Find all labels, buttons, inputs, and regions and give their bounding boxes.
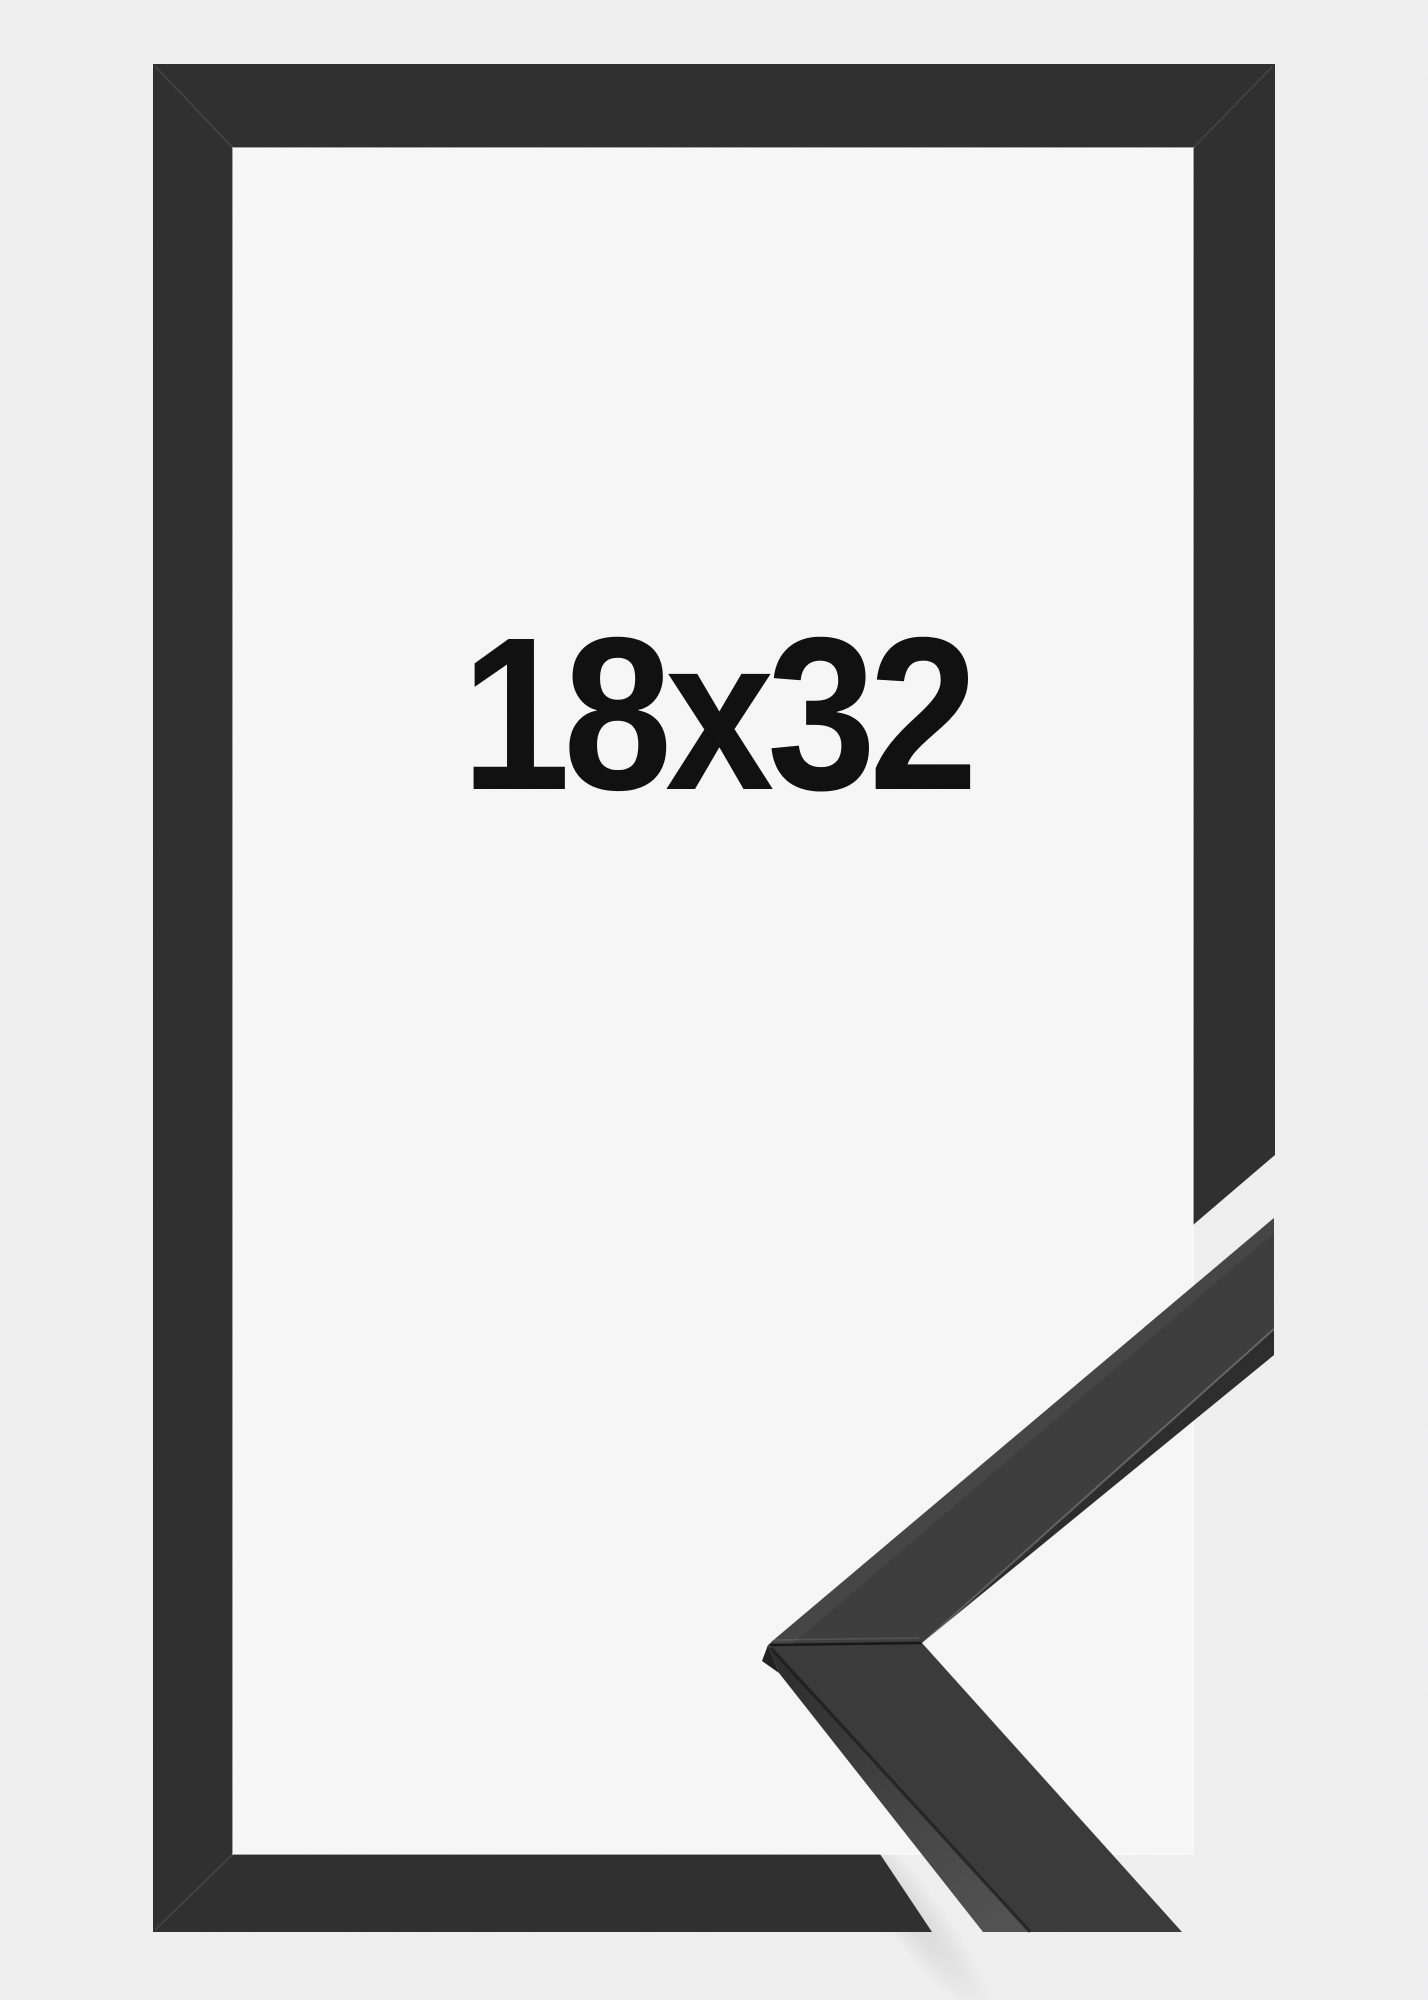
- film-grain-overlay: [0, 0, 1428, 2000]
- frame-product-photo: 18x32: [0, 0, 1428, 2000]
- product-photo-canvas: 18x32: [0, 0, 1428, 2000]
